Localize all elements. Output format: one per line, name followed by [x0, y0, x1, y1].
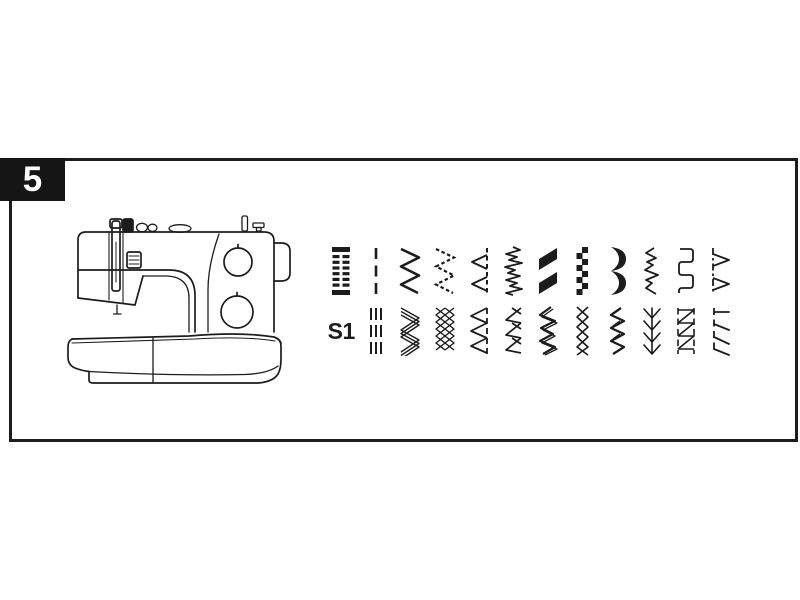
stitch-square-wave-icon — [669, 246, 704, 296]
sewing-machine-illustration — [65, 210, 297, 390]
machine-arm-inner-edge — [143, 276, 189, 332]
needle — [114, 305, 122, 314]
stitch-straight-icon — [359, 246, 394, 296]
base-outline — [68, 338, 281, 383]
stitch-buttonhole-icon — [324, 246, 359, 296]
stitch-box-overlock-icon — [669, 306, 704, 356]
stitch-chart: S1 — [324, 246, 738, 366]
top-bump-1 — [137, 223, 148, 231]
stitch-ric-rac-icon — [393, 306, 428, 356]
machine-head-bottom — [78, 276, 143, 305]
machine-pillar-crease — [208, 234, 219, 332]
stitch-row-1 — [324, 246, 738, 296]
top-knob-dark — [123, 219, 133, 232]
stitch-elastic-icon — [497, 246, 532, 296]
stitch-zigzag-icon — [393, 246, 428, 296]
stitch-overcast-icon — [462, 306, 497, 356]
stitch-triple-straight-icon — [359, 306, 394, 356]
stitch-blind-hem-icon — [462, 246, 497, 296]
stitch-feather-zigzag-icon — [497, 306, 532, 356]
stitch-shell-hem-icon — [704, 246, 739, 296]
bobbin-winder-cap — [253, 223, 264, 228]
handwheel-plate — [274, 243, 290, 281]
stitch-satin-zigzag-icon — [531, 246, 566, 296]
stitch-smocking-icon — [428, 306, 463, 356]
stitch-scallop-icon — [600, 246, 635, 296]
s1-label: S1 — [324, 306, 359, 356]
stitch-stepped-satin-icon — [566, 246, 601, 296]
stitch-pin-stitch-icon — [704, 306, 739, 356]
top-bump-2 — [148, 224, 157, 231]
spool-pin — [242, 216, 248, 231]
bobbin-winder-stem — [257, 228, 262, 232]
stitch-feather-icon — [635, 306, 670, 356]
stitch-three-step-zigzag-icon — [428, 246, 463, 296]
step-number-badge: 5 — [0, 158, 65, 201]
stitch-double-zigzag-icon — [531, 306, 566, 356]
base-lip-line — [89, 366, 278, 375]
upper-dial — [224, 248, 252, 276]
stitch-overlock-icon — [600, 306, 635, 356]
lower-dial — [221, 296, 253, 328]
step-number: 5 — [23, 162, 42, 197]
tension-dial-slots — [129, 256, 139, 264]
stitch-stretch-zigzag-icon — [635, 246, 670, 296]
machine-body-outline — [78, 232, 274, 332]
stitch-cross-stitch-icon — [566, 306, 601, 356]
stitch-row-2: S1 — [324, 306, 738, 356]
